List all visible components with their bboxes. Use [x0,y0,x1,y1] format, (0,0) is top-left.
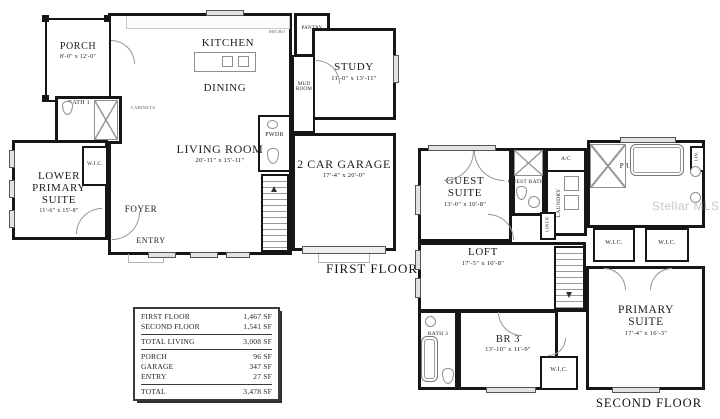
kitchen-cooktop [238,56,249,67]
garage-label: 2 CAR GARAGE 17'-4" x 20'-0" [294,158,394,179]
pantry-label: PANTRY [294,26,330,31]
primary-bath-sink [690,166,701,177]
wic-br3-door-arc [548,338,566,356]
primary-suite-window [612,387,660,393]
kitchen-counter [126,16,290,29]
stairs-down-arrow-icon [566,292,572,298]
br3-window [486,387,536,393]
row-label: FIRST FLOOR [141,312,190,322]
stellar-mls-watermark: Stellar MLS [652,199,720,213]
guest-bath-shower [514,150,543,176]
table-row: SECOND FLOOR 1,541 SF [141,322,272,332]
porch-post [42,95,49,102]
guest-suite-window [428,145,496,151]
loft-window [415,278,421,298]
stairs-up-arrow-icon [271,186,277,192]
porch-name: PORCH [46,42,110,53]
guest-bath-sink [528,196,540,208]
table-row: FIRST FLOOR 1,467 SF [141,312,272,322]
row-value: 347 SF [249,362,272,372]
guest-bath-label: GUEST BATH [506,180,546,186]
row-value: 1,541 SF [243,322,272,332]
row-label: TOTAL LIVING [141,337,195,347]
loft-window [415,250,421,270]
table-row: TOTAL 3,478 SF [141,384,272,397]
table-row: TOTAL LIVING 3,008 SF [141,334,272,347]
row-value: 1,467 SF [243,312,272,322]
cabinets-label: CABINETS [120,106,166,111]
guest-suite-window [415,185,421,215]
loft-label: LOFT 17'-5" x 10'-8" [433,247,533,267]
primary-bath-tub [630,144,684,176]
guest-suite-dim: 13'-0" x 10'-8" [420,201,510,208]
br3-name: BR 3 [460,334,556,345]
ac-partition-wall [547,170,585,172]
row-value: 27 SF [253,372,272,382]
living-room-window [148,252,176,258]
loft-dim: 17'-5" x 10'-8" [433,260,533,267]
garage-name: 2 CAR GARAGE [294,158,394,171]
porch-post [42,15,49,22]
suite-window [9,210,15,228]
loft-name: LOFT [433,247,533,259]
kitchen-sink [222,56,233,67]
laundry-label: LAUNDRY [557,181,563,225]
lower-primary-suite-name: LOWER PRIMARY SUITE [17,171,101,207]
pwdr-label: PWDR [259,132,290,138]
living-room-window [190,252,218,258]
primary-bath-window [620,137,676,143]
table-row: PORCH 96 SF [141,349,272,362]
washer [564,176,579,191]
row-label: SECOND FLOOR [141,322,200,332]
garage-room [292,133,396,251]
br3-dim: 13'-10" x 11'-9" [460,346,556,353]
mud-room-label: MUD ROOM [290,82,318,93]
ac-label: A/C [550,157,582,163]
lower-primary-suite-label: LOWER PRIMARY SUITE 11'-6" x 15'-8" [17,171,101,214]
row-value: 3,478 SF [243,387,272,397]
micro-label: MICRO [264,30,290,35]
br3-label: BR 3 13'-10" x 11'-9" [460,334,556,353]
row-label: ENTRY [141,372,167,382]
row-value: 96 SF [253,352,272,362]
primary-suite-name: PRIMARY SUITE [611,304,681,329]
garage-door-opening [302,246,386,254]
row-label: GARAGE [141,362,173,372]
kitchen-label: KITCHEN [178,38,278,50]
suite-window [9,180,15,198]
second-floor-caption: SECOND FLOOR [578,396,720,411]
bath3-sink [425,316,436,327]
study-window [393,55,399,83]
table-row: GARAGE 347 SF [141,362,272,372]
driveway-step [318,254,370,263]
suite-window [9,150,15,168]
kitchen-window [206,10,244,16]
area-summary-table: FIRST FLOOR 1,467 SF SECOND FLOOR 1,541 … [133,307,280,401]
wic-left-label: W.I.C. [595,240,633,246]
row-value: 3,008 SF [243,337,272,347]
table-row: ENTRY 27 SF [141,372,272,382]
entry-label: ENTRY [128,237,174,246]
porch-label: PORCH 8'-0" x 12'-0" [46,42,110,60]
linen-label: LINEN [546,204,551,244]
guest-suite-label: GUEST SUITE 13'-0" x 10'-8" [420,176,510,208]
porch-post [104,15,111,22]
primary-bath-shower [590,144,626,188]
garage-dim: 17'-4" x 20'-0" [294,172,394,179]
porch-dim: 8'-0" x 12'-0" [46,54,110,60]
pwdr-sink [267,120,278,129]
primary-suite-dim: 17'-4" x 16'-3" [596,330,696,337]
primary-suite-label: PRIMARY SUITE 17'-4" x 16'-3" [596,304,696,337]
floor-plan-canvas: PORCH 8'-0" x 12'-0" KITCHEN DINING PANT… [0,0,720,419]
wic-right-label: W.I.C. [647,240,687,246]
living-room-window [226,252,250,258]
bath1-shower [94,100,118,140]
dryer [564,195,579,210]
wic-first-floor-label: W.I.C. [82,162,108,168]
stairs-second-floor [554,246,585,310]
bath3-tub [421,336,438,382]
dining-label: DINING [180,83,270,95]
wic-br3-label: W.I.C. [541,367,577,373]
row-label: TOTAL [141,387,166,397]
row-label: PORCH [141,352,167,362]
